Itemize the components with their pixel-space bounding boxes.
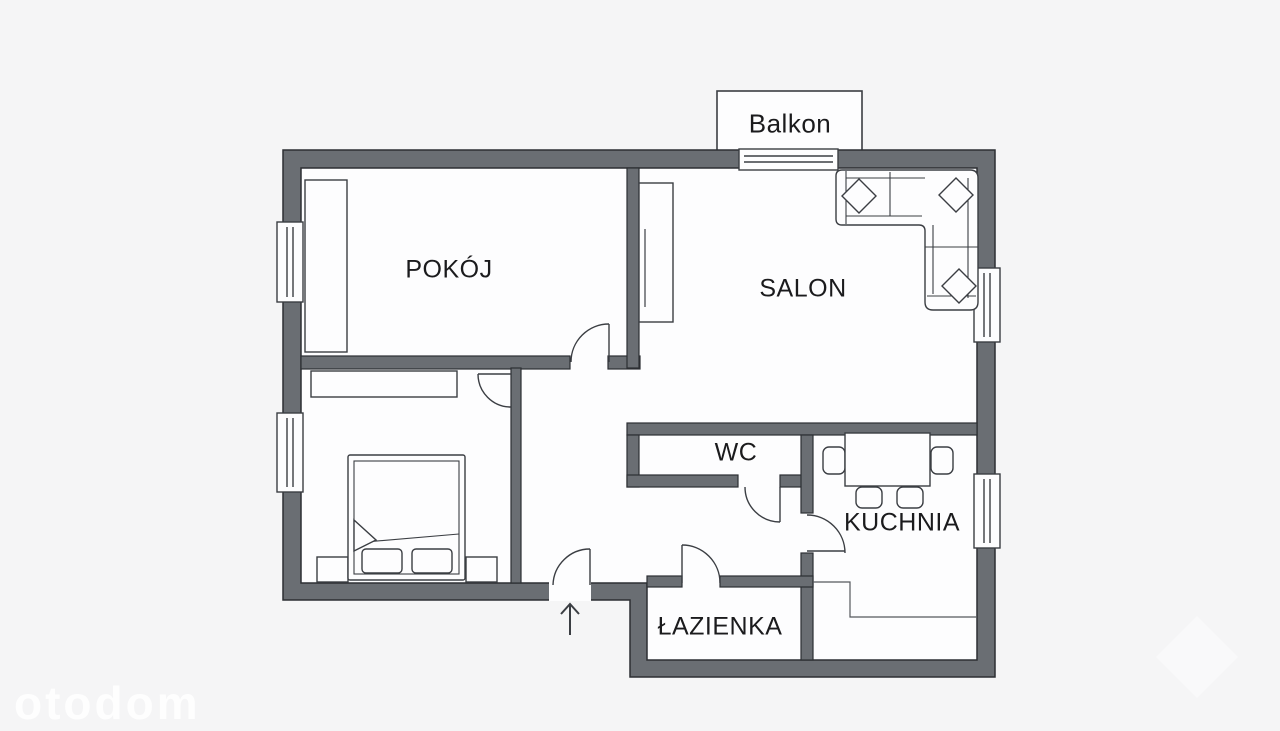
- lazienka-label: ŁAZIENKA: [658, 613, 783, 642]
- wc-label: WC: [715, 439, 758, 468]
- entrance-arrow-icon: [561, 604, 579, 635]
- balcony-door-window: [739, 149, 838, 170]
- window-kuchnia: [974, 474, 1000, 548]
- balkon-label: Balkon: [749, 109, 832, 140]
- nightstand-left: [317, 557, 348, 582]
- wall-salon-divider: [627, 168, 639, 368]
- wall-pokoj-bottom: [301, 356, 570, 369]
- wall-wc-bottom-left: [627, 475, 738, 487]
- otodom-watermark: otodom: [14, 676, 201, 730]
- pillow: [412, 549, 452, 573]
- pokoj-label: POKÓJ: [405, 256, 492, 285]
- floor-plan-drawing: [0, 0, 1280, 731]
- entrance-opening: [549, 582, 591, 601]
- kitchen-table: [845, 433, 930, 486]
- window-pokoj: [277, 222, 303, 302]
- kuchnia-label: KUCHNIA: [844, 509, 960, 538]
- wall-kitchen-upper: [801, 435, 813, 513]
- salon-label: SALON: [759, 275, 846, 304]
- wall-kitchen-lower: [801, 553, 813, 660]
- wardrobe-pokoj: [305, 180, 347, 352]
- chair: [823, 447, 845, 474]
- wall-bedroom-right: [511, 368, 521, 583]
- wall-lazienka-top-right: [720, 576, 813, 587]
- chair: [931, 447, 953, 474]
- nightstand-right: [466, 557, 497, 582]
- floor-plan: Balkon POKÓJ SALON WC KUCHNIA ŁAZIENKA o…: [0, 0, 1280, 731]
- window-bedroom: [277, 413, 303, 492]
- chair: [897, 487, 923, 508]
- chair: [856, 487, 882, 508]
- wall-lazienka-top-left: [647, 576, 682, 587]
- cabinet-salon: [639, 183, 673, 322]
- wardrobe-bedroom: [311, 371, 457, 397]
- pillow: [362, 549, 402, 573]
